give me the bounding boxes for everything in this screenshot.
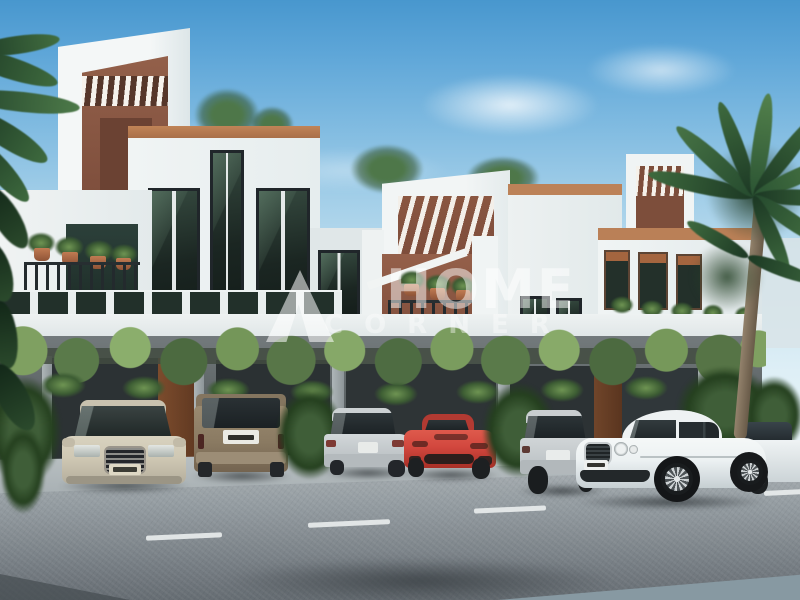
palm-shadow xyxy=(225,558,615,600)
car-wheel xyxy=(270,462,284,477)
hood-vents xyxy=(434,434,468,440)
car-windshield xyxy=(74,406,172,440)
car-bmw-rear xyxy=(324,408,410,478)
car-bentley-front xyxy=(576,408,766,510)
car-audi-front xyxy=(62,400,186,492)
cloud xyxy=(586,44,736,96)
car-wheel xyxy=(408,458,424,477)
pergola-louvers xyxy=(82,76,168,106)
plate-text xyxy=(587,463,605,467)
car-wheel xyxy=(198,462,212,477)
vine-tuft xyxy=(374,382,418,406)
cloud xyxy=(420,74,600,136)
car-wheel xyxy=(528,466,548,494)
license-plate xyxy=(358,442,378,453)
car-headlight xyxy=(412,441,428,447)
car-headlight xyxy=(148,445,174,457)
car-intake xyxy=(580,470,650,482)
plate-text xyxy=(228,435,254,440)
right-building-top xyxy=(626,154,694,238)
car-wheel-rim xyxy=(737,459,763,485)
terracotta-cap xyxy=(508,184,622,195)
car-wheel xyxy=(330,460,344,475)
car-rear-glass xyxy=(202,398,280,428)
balcony-pot xyxy=(34,248,50,261)
car-taillight xyxy=(326,440,336,447)
car-mirror xyxy=(173,438,186,447)
car-wheel-rim xyxy=(661,463,693,495)
car-headlight xyxy=(74,445,100,457)
balcony-pot xyxy=(430,288,445,300)
ledge-plant xyxy=(610,296,634,314)
car-bumper xyxy=(66,476,182,484)
car-headlight xyxy=(629,445,638,454)
vine-tuft xyxy=(122,376,166,400)
car-headlight xyxy=(614,442,628,456)
vine-tuft xyxy=(624,376,668,400)
terracotta-cap xyxy=(128,126,320,138)
plate-text xyxy=(113,467,137,472)
balcony-pot xyxy=(404,284,419,296)
car-taillight xyxy=(392,440,404,447)
car-taillight xyxy=(198,434,204,449)
bush xyxy=(0,426,46,514)
car-suv-rear xyxy=(194,394,288,484)
car-wheel xyxy=(472,458,490,479)
car-grille xyxy=(424,454,474,464)
rendered-photo: HOME CORNER xyxy=(0,0,800,600)
car-taillight xyxy=(522,446,530,453)
